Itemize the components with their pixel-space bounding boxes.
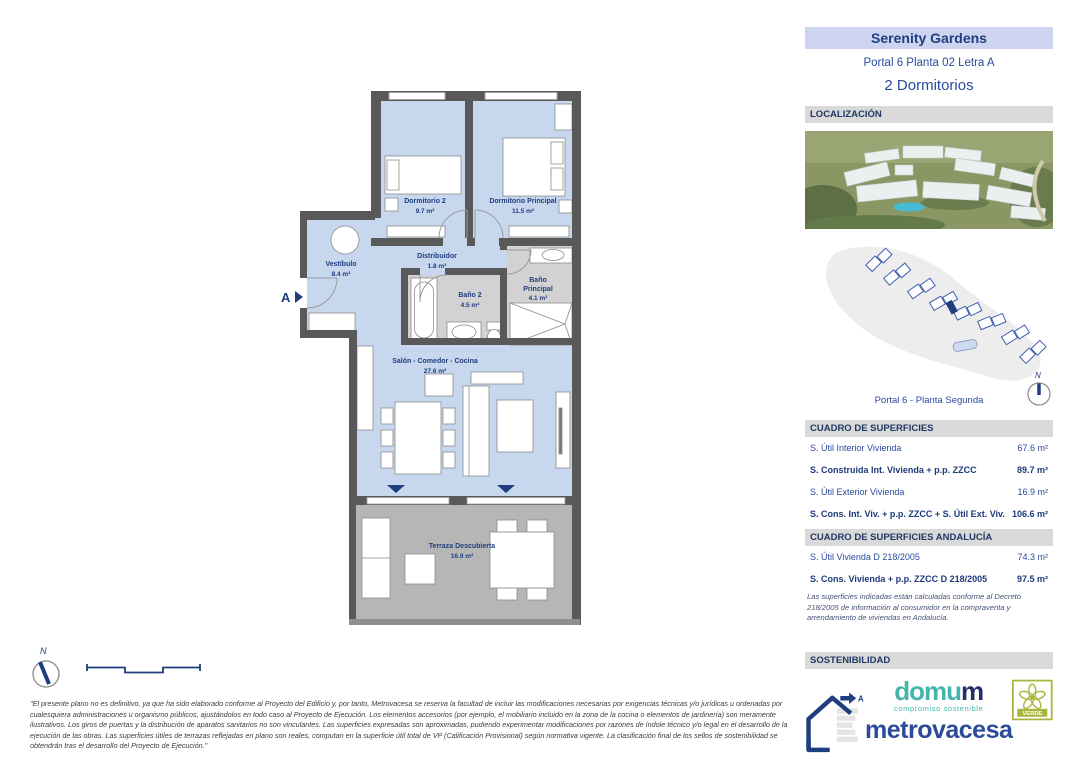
room-area-dormitorio-2: 9.7 m² — [416, 208, 436, 215]
energy-rating-label: A — [858, 694, 864, 703]
table-row: S. Útil Exterior Vivienda 16.9 m² — [805, 481, 1053, 503]
site-plan: N — [805, 235, 1053, 395]
section-header-sostenibilidad: SOSTENIBILIDAD — [805, 652, 1053, 669]
table-row: S. Cons. Vivienda + p.p. ZZCC D 218/2005… — [805, 568, 1053, 590]
table-row: S. Útil Vivienda D 218/2005 74.3 m² — [805, 546, 1053, 568]
row-label: S. Cons. Vivienda + p.p. ZZCC D 218/2005 — [810, 574, 987, 584]
sustainability-logos: A domum compromiso sostenible metrovaces… — [805, 677, 1053, 757]
aerial-photo — [805, 131, 1053, 229]
room-area-bano-principal: 4.1 m² — [529, 295, 549, 302]
scale-bar — [85, 660, 203, 678]
room-area-terraza: 16.9 m² — [451, 553, 474, 560]
row-value: 16.9 m² — [1017, 487, 1048, 497]
table-row: S. Cons. Int. Viv. + p.p. ZZCC + S. Útil… — [805, 503, 1053, 525]
room-area-salon: 27.6 m² — [424, 368, 447, 375]
metrovacesa-logo: metrovacesa — [865, 716, 1012, 745]
section-header-superficies: CUADRO DE SUPERFICIES — [805, 420, 1053, 437]
verde-badge-label: VERDE — [1023, 711, 1043, 717]
room-label-terraza: Terraza Descubierta — [429, 543, 496, 550]
site-plan-north-icon: N — [1025, 369, 1053, 409]
row-value: 97.5 m² — [1017, 574, 1048, 584]
section-header-localizacion: LOCALIZACIÓN — [805, 106, 1053, 123]
entrance-letter: A — [281, 290, 291, 305]
row-label: S. Útil Vivienda D 218/2005 — [810, 552, 920, 562]
floor-plan: A Dormitorio 2 9.7 m² Dormitorio Princip… — [275, 90, 585, 635]
bedroom-count: 2 Dormitorios — [805, 77, 1053, 96]
room-label-dormitorio-2: Dormitorio 2 — [404, 198, 446, 205]
energy-house-icon: A — [805, 681, 865, 757]
row-value: 89.7 m² — [1017, 465, 1048, 475]
decreto-note: Las superficies indicadas están calculad… — [805, 592, 1053, 624]
room-label-bano-principal-2: Principal — [523, 286, 553, 293]
compass-n-label: N — [40, 646, 47, 656]
verde-badge-icon: VERDE — [1012, 677, 1053, 723]
surfaces-andalucia-table: CUADRO DE SUPERFICIES ANDALUCÍA S. Útil … — [805, 529, 1053, 624]
domum-logo-part2: m — [961, 676, 983, 706]
legal-disclaimer: "El presente plano no es definitivo, ya … — [30, 699, 792, 752]
row-label: S. Cons. Int. Viv. + p.p. ZZCC + S. Útil… — [810, 509, 1005, 519]
room-area-dormitorio-principal: 11.5 m² — [512, 208, 535, 215]
plan-sheet: A Dormitorio 2 9.7 m² Dormitorio Princip… — [0, 0, 1080, 764]
info-sidebar: Serenity Gardens Portal 6 Planta 02 Letr… — [805, 27, 1053, 757]
room-area-vestibulo: 8.4 m² — [332, 271, 352, 278]
row-value: 67.6 m² — [1017, 443, 1048, 453]
site-compass-n-label: N — [1035, 371, 1041, 380]
brand-logos: domum compromiso sostenible metrovacesa — [865, 679, 1012, 745]
domum-logo: domum — [865, 679, 1012, 703]
north-compass-icon: N — [26, 643, 70, 693]
row-label: S. Útil Interior Vivienda — [810, 443, 901, 453]
table-row: S. Construida Int. Vivienda + p.p. ZZCC … — [805, 459, 1053, 481]
domum-logo-part1: domu — [894, 676, 961, 706]
row-value: 106.6 m² — [1012, 509, 1048, 519]
room-label-bano-principal-1: Baño — [529, 277, 547, 284]
room-area-distribuidor: 1.8 m² — [428, 263, 448, 270]
page-title: Serenity Gardens — [805, 27, 1053, 49]
surfaces-table: CUADRO DE SUPERFICIES S. Útil Interior V… — [805, 420, 1053, 525]
site-plan-caption: Portal 6 - Planta Segunda — [805, 395, 1053, 408]
room-label-salon: Salón - Comedor - Cocina — [392, 358, 478, 365]
room-label-vestibulo: Vestíbulo — [325, 261, 356, 268]
unit-reference: Portal 6 Planta 02 Letra A — [805, 57, 1053, 71]
entrance-arrow-icon — [295, 291, 303, 303]
row-value: 74.3 m² — [1017, 552, 1048, 562]
section-header-andalucia: CUADRO DE SUPERFICIES ANDALUCÍA — [805, 529, 1053, 546]
room-label-distribuidor: Distribuidor — [417, 253, 457, 260]
room-label-dormitorio-principal: Dormitorio Principal — [489, 198, 556, 205]
row-label: S. Construida Int. Vivienda + p.p. ZZCC — [810, 465, 977, 475]
entrance-marker: A — [281, 290, 303, 305]
room-label-bano-2: Baño 2 — [458, 292, 481, 299]
domum-tagline: compromiso sostenible — [865, 704, 1012, 713]
row-label: S. Útil Exterior Vivienda — [810, 487, 904, 497]
table-row: S. Útil Interior Vivienda 67.6 m² — [805, 437, 1053, 459]
room-area-bano-2: 4.5 m² — [461, 302, 481, 309]
